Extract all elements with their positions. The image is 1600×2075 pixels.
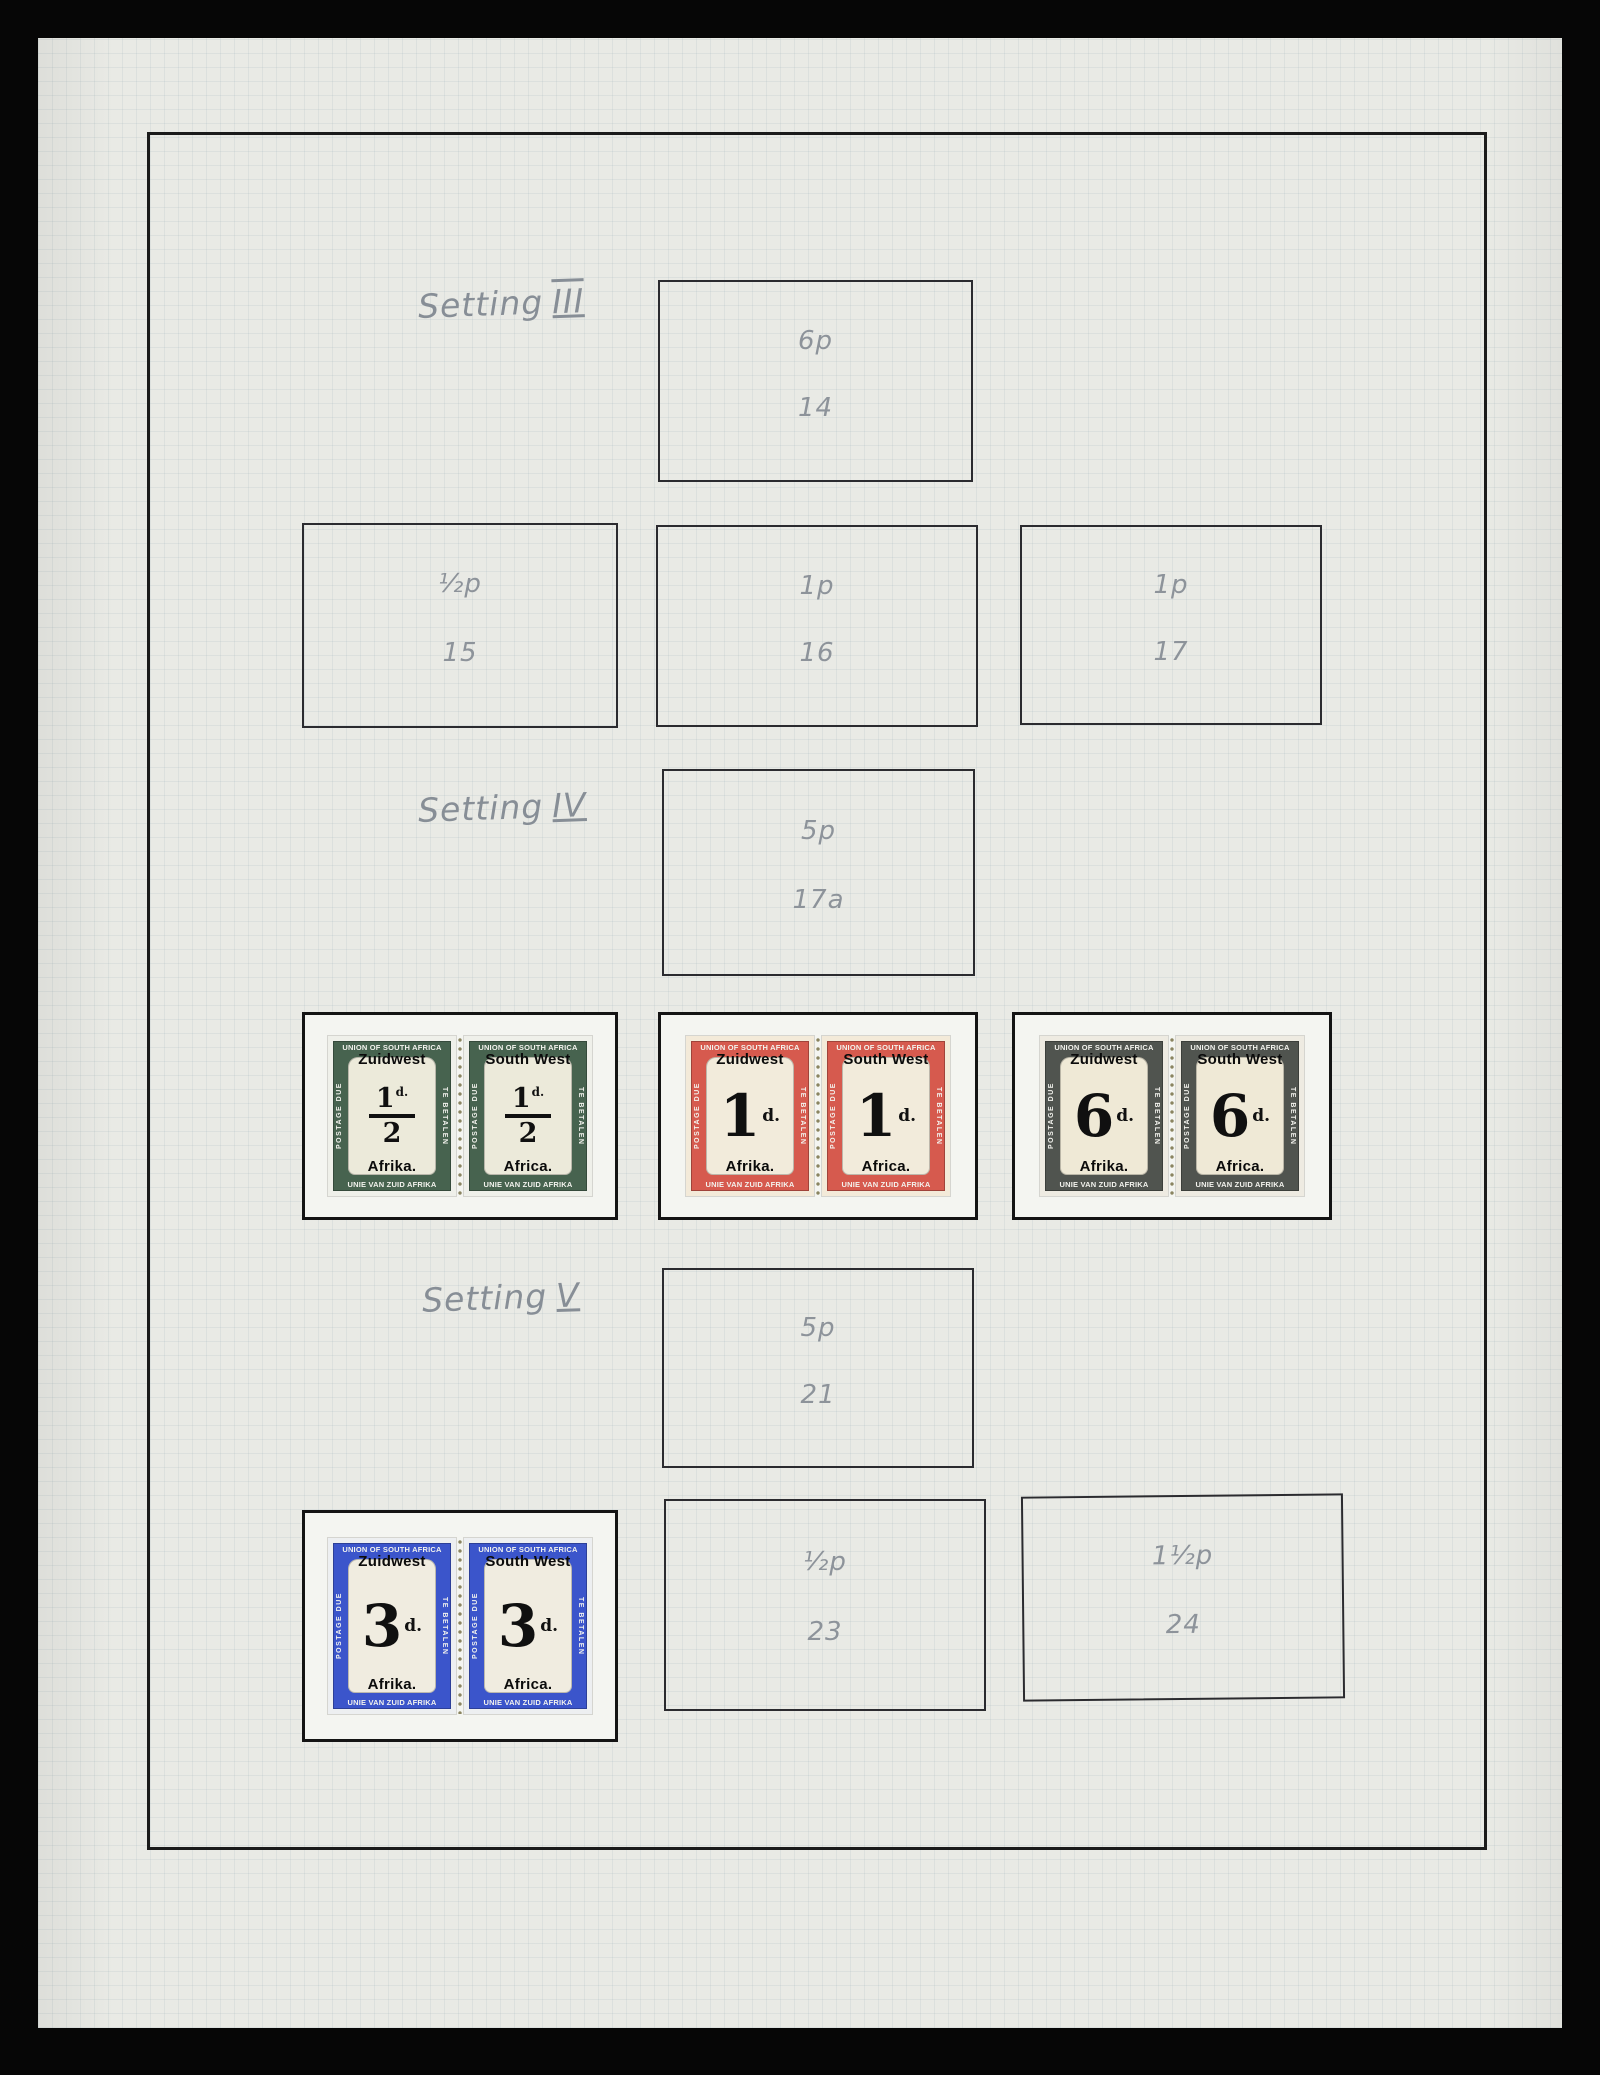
overprint-line2: Africa. bbox=[822, 1158, 950, 1175]
stamp-value: 1d. 2 bbox=[505, 1085, 551, 1147]
section-label-setting-iv: SettingIV bbox=[417, 785, 587, 830]
stamp-value: 1d. bbox=[856, 1090, 916, 1142]
setting-numeral: III bbox=[551, 281, 585, 321]
fraction-numerator-row: 1d. bbox=[512, 1085, 544, 1112]
placeholder-box-17: 1p 17 bbox=[1020, 525, 1322, 725]
stamp-left-band-text: POSTAGE DUE bbox=[469, 1556, 482, 1696]
overprint-line2: Afrika. bbox=[328, 1676, 456, 1693]
stamp-mount-halfpenny: UNION OF SOUTH AFRICA POSTAGE DUE 1d. 2 … bbox=[302, 1012, 618, 1220]
stamp-one-penny-southwest: UNION OF SOUTH AFRICA POSTAGE DUE 1d. TE… bbox=[822, 1036, 950, 1196]
perforation-strip bbox=[456, 1538, 464, 1714]
stamp-value: 6d. bbox=[1074, 1090, 1134, 1142]
stamp-middle: POSTAGE DUE 3d. TE BETALEN bbox=[469, 1556, 587, 1696]
handwritten-denomination: 5p bbox=[664, 1313, 972, 1343]
section-label-setting-v: SettingV bbox=[421, 1275, 580, 1319]
perforation-strip bbox=[1168, 1036, 1176, 1196]
stamp-value: 3d. bbox=[362, 1600, 422, 1652]
value-numeral: 3 bbox=[498, 1600, 538, 1652]
stamp-left-band-text: POSTAGE DUE bbox=[333, 1556, 346, 1696]
fraction-denominator: 2 bbox=[519, 1120, 538, 1147]
fraction-denominator: 2 bbox=[383, 1120, 402, 1147]
setting-numeral: V bbox=[555, 1275, 580, 1315]
perforation-strip bbox=[456, 1036, 464, 1196]
value-unit: d. bbox=[762, 1106, 780, 1126]
overprint-line2: Afrika. bbox=[328, 1158, 456, 1175]
stamp-bottom-band-text: UNIE VAN ZUID AFRIKA bbox=[469, 1178, 587, 1191]
placeholder-box-23: ½p 23 bbox=[664, 1499, 986, 1711]
stamp-right-band-text: TE BETALEN bbox=[574, 1556, 587, 1696]
stamp-one-penny-zuidwest: UNION OF SOUTH AFRICA POSTAGE DUE 1d. TE… bbox=[686, 1036, 814, 1196]
stamp-pair-threepence: UNION OF SOUTH AFRICA POSTAGE DUE 3d. TE… bbox=[328, 1538, 592, 1714]
placeholder-box-17a: 5p 17a bbox=[662, 769, 975, 976]
handwritten-number: 23 bbox=[666, 1617, 984, 1647]
overprint-line1: South West bbox=[822, 1051, 950, 1068]
overprint-line2: Africa. bbox=[1176, 1158, 1304, 1175]
stamp-value-tablet: 3d. bbox=[484, 1559, 572, 1693]
placeholder-box-21: 5p 21 bbox=[662, 1268, 974, 1468]
handwritten-number: 17a bbox=[664, 885, 973, 915]
overprint-line1: South West bbox=[1176, 1051, 1304, 1068]
placeholder-box-14: 6p 14 bbox=[658, 280, 973, 482]
stamp-sixpence-southwest: UNION OF SOUTH AFRICA POSTAGE DUE 6d. TE… bbox=[1176, 1036, 1304, 1196]
stamp-value: 1d. 2 bbox=[369, 1085, 415, 1147]
overprint-line2: Afrika. bbox=[686, 1158, 814, 1175]
stamp-sixpence-zuidwest: UNION OF SOUTH AFRICA POSTAGE DUE 6d. TE… bbox=[1040, 1036, 1168, 1196]
handwritten-number: 21 bbox=[664, 1380, 972, 1410]
overprint-line1: Zuidwest bbox=[328, 1553, 456, 1570]
overprint-line2: Africa. bbox=[464, 1676, 592, 1693]
setting-word: Setting bbox=[421, 1276, 547, 1319]
value-unit: d. bbox=[532, 1085, 545, 1099]
setting-word: Setting bbox=[417, 283, 543, 326]
stamp-value: 6d. bbox=[1210, 1090, 1270, 1142]
stamp-mount-one-penny: UNION OF SOUTH AFRICA POSTAGE DUE 1d. TE… bbox=[658, 1012, 978, 1220]
album-page: SettingIII SettingIV SettingV 6p 14 ½p 1… bbox=[38, 38, 1562, 2028]
stamp-pair-sixpence: UNION OF SOUTH AFRICA POSTAGE DUE 6d. TE… bbox=[1040, 1036, 1304, 1196]
value-numeral: 6 bbox=[1074, 1090, 1114, 1142]
stamp-bottom-band-text: UNIE VAN ZUID AFRIKA bbox=[827, 1178, 945, 1191]
value-numeral: 1 bbox=[720, 1090, 760, 1142]
handwritten-denomination: 1½p bbox=[1023, 1540, 1341, 1573]
handwritten-number: 17 bbox=[1022, 637, 1320, 667]
handwritten-denomination: ½p bbox=[304, 569, 616, 599]
setting-word: Setting bbox=[417, 787, 543, 830]
handwritten-number: 16 bbox=[658, 638, 976, 668]
placeholder-box-16: 1p 16 bbox=[656, 525, 978, 727]
photo-background: { "photo": { "background_color": "#06060… bbox=[0, 0, 1600, 2075]
handwritten-number: 15 bbox=[304, 638, 616, 668]
stamp-threepence-southwest: UNION OF SOUTH AFRICA POSTAGE DUE 3d. TE… bbox=[464, 1538, 592, 1714]
stamp-bottom-band-text: UNIE VAN ZUID AFRIKA bbox=[333, 1178, 451, 1191]
stamp-value: 3d. bbox=[498, 1600, 558, 1652]
stamp-middle: POSTAGE DUE 3d. TE BETALEN bbox=[333, 1556, 451, 1696]
value-numeral: 1 bbox=[856, 1090, 896, 1142]
stamp-bottom-band-text: UNIE VAN ZUID AFRIKA bbox=[1181, 1178, 1299, 1191]
handwritten-denomination: 6p bbox=[660, 326, 971, 356]
stamp-mount-sixpence: UNION OF SOUTH AFRICA POSTAGE DUE 6d. TE… bbox=[1012, 1012, 1332, 1220]
stamp-bottom-band-text: UNIE VAN ZUID AFRIKA bbox=[469, 1696, 587, 1709]
section-label-setting-iii: SettingIII bbox=[417, 281, 585, 326]
stamp-right-band-text: TE BETALEN bbox=[438, 1556, 451, 1696]
stamp-value: 1d. bbox=[720, 1090, 780, 1142]
overprint-line1: Zuidwest bbox=[1040, 1051, 1168, 1068]
handwritten-denomination: 1p bbox=[658, 571, 976, 601]
stamp-bottom-band-text: UNIE VAN ZUID AFRIKA bbox=[1045, 1178, 1163, 1191]
stamp-halfpenny-southwest: UNION OF SOUTH AFRICA POSTAGE DUE 1d. 2 … bbox=[464, 1036, 592, 1196]
handwritten-denomination: ½p bbox=[666, 1547, 984, 1577]
value-numeral: 6 bbox=[1210, 1090, 1250, 1142]
stamp-halfpenny-zuidwest: UNION OF SOUTH AFRICA POSTAGE DUE 1d. 2 … bbox=[328, 1036, 456, 1196]
value-unit: d. bbox=[1252, 1106, 1270, 1126]
handwritten-number: 24 bbox=[1024, 1608, 1342, 1641]
perforation-strip bbox=[814, 1036, 822, 1196]
stamp-pair-halfpenny: UNION OF SOUTH AFRICA POSTAGE DUE 1d. 2 … bbox=[328, 1036, 592, 1196]
handwritten-number: 14 bbox=[660, 393, 971, 423]
value-unit: d. bbox=[396, 1085, 409, 1099]
setting-numeral: IV bbox=[551, 785, 587, 825]
value-unit: d. bbox=[898, 1106, 916, 1126]
fraction-numerator-row: 1d. bbox=[376, 1085, 408, 1112]
stamp-value-tablet: 3d. bbox=[348, 1559, 436, 1693]
value-numeral: 3 bbox=[362, 1600, 402, 1652]
stamp-mount-threepence: UNION OF SOUTH AFRICA POSTAGE DUE 3d. TE… bbox=[302, 1510, 618, 1742]
overprint-line1: South West bbox=[464, 1553, 592, 1570]
handwritten-denomination: 5p bbox=[664, 816, 973, 846]
overprint-line1: Zuidwest bbox=[686, 1051, 814, 1068]
stamp-bottom-band-text: UNIE VAN ZUID AFRIKA bbox=[333, 1696, 451, 1709]
handwritten-denomination: 1p bbox=[1022, 570, 1320, 600]
overprint-line2: Africa. bbox=[464, 1158, 592, 1175]
stamp-bottom-band-text: UNIE VAN ZUID AFRIKA bbox=[691, 1178, 809, 1191]
value-unit: d. bbox=[540, 1616, 558, 1636]
fraction-numerator: 1 bbox=[512, 1085, 531, 1112]
stamp-threepence-zuidwest: UNION OF SOUTH AFRICA POSTAGE DUE 3d. TE… bbox=[328, 1538, 456, 1714]
overprint-line2: Afrika. bbox=[1040, 1158, 1168, 1175]
stamp-pair-one-penny: UNION OF SOUTH AFRICA POSTAGE DUE 1d. TE… bbox=[686, 1036, 950, 1196]
placeholder-box-24: 1½p 24 bbox=[1021, 1493, 1345, 1701]
value-unit: d. bbox=[1116, 1106, 1134, 1126]
overprint-line1: South West bbox=[464, 1051, 592, 1068]
fraction-numerator: 1 bbox=[376, 1085, 395, 1112]
overprint-line1: Zuidwest bbox=[328, 1051, 456, 1068]
placeholder-box-15: ½p 15 bbox=[302, 523, 618, 728]
value-unit: d. bbox=[404, 1616, 422, 1636]
